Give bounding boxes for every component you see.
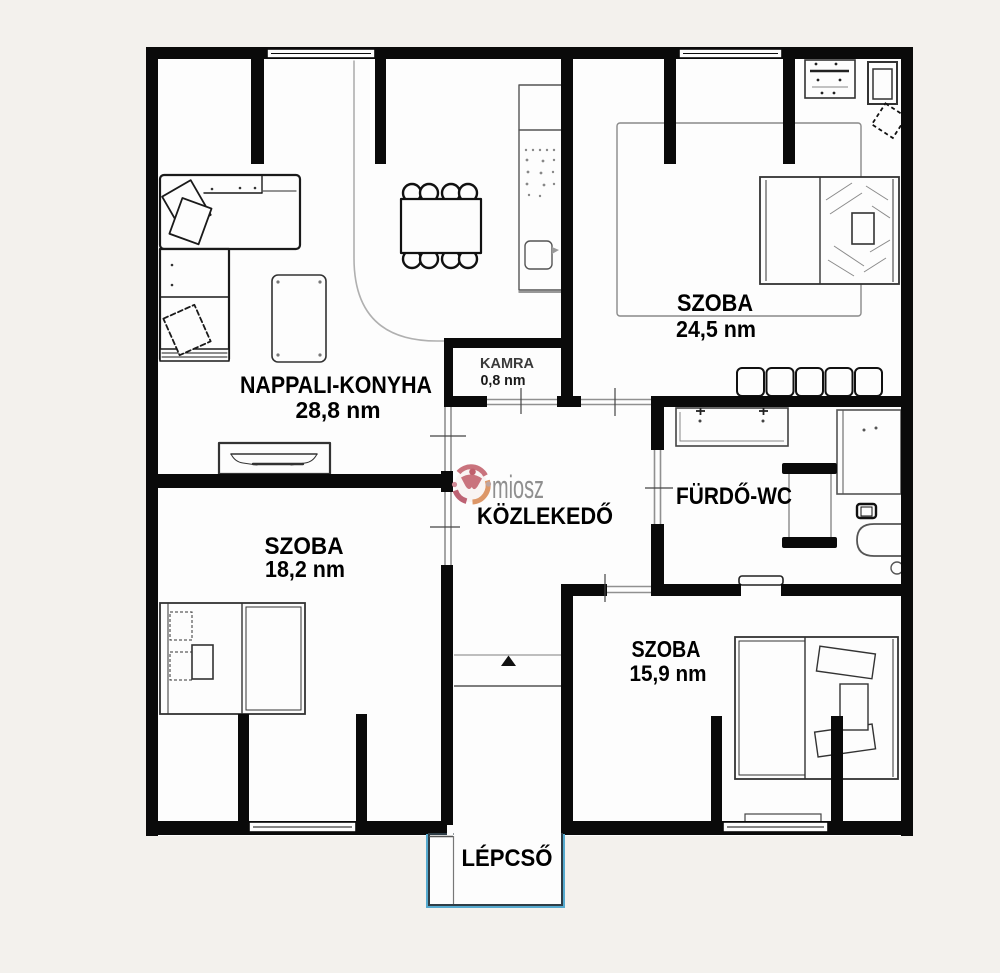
svg-text:miosz: miosz: [492, 469, 544, 505]
svg-text:28,8 nm: 28,8 nm: [296, 397, 381, 423]
svg-text:FÜRDŐ-WC: FÜRDŐ-WC: [676, 482, 792, 510]
svg-text:0,8 nm: 0,8 nm: [481, 372, 526, 389]
svg-text:LÉPCSŐ: LÉPCSŐ: [462, 844, 553, 872]
svg-text:15,9 nm: 15,9 nm: [630, 661, 707, 686]
svg-text:KÖZLEKEDŐ: KÖZLEKEDŐ: [477, 502, 613, 530]
svg-text:NAPPALI-KONYHA: NAPPALI-KONYHA: [240, 372, 432, 399]
svg-text:24,5 nm: 24,5 nm: [676, 316, 756, 342]
svg-text:SZOBA: SZOBA: [632, 636, 701, 662]
svg-text:KAMRA: KAMRA: [480, 355, 534, 372]
svg-text:18,2 nm: 18,2 nm: [265, 556, 345, 582]
svg-text:SZOBA: SZOBA: [677, 290, 753, 317]
